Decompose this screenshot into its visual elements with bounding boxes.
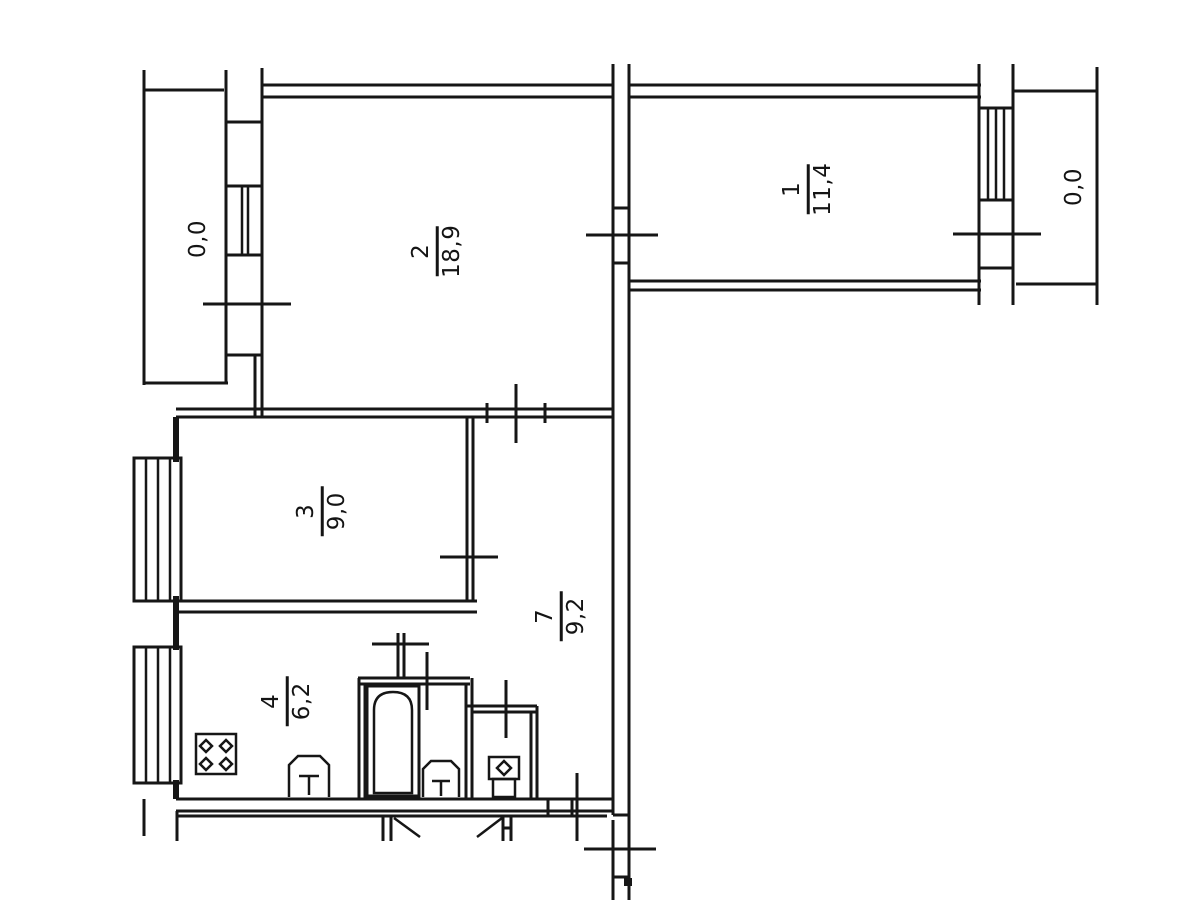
room-4-area: 6,2 [289,682,316,720]
kitchen-sink-icon [289,756,329,797]
bathroom-sink-icon [423,761,459,797]
room-7-label: 7 9,2 [533,588,590,644]
room-4-label: 4 6,2 [259,673,316,729]
bottom-wall [144,799,613,841]
room-7-area: 9,2 [563,597,590,635]
room-1-number: 1 [780,164,810,214]
room-2-area: 18,9 [439,225,466,278]
door-ticks [203,234,1041,849]
stove-icon [196,734,236,774]
left-balcony-label: 0,0 [185,213,211,265]
room2-balcony-window [226,68,262,418]
room-3-label: 3 9,0 [294,483,351,539]
toilet-icon [489,757,519,797]
room-3-number: 3 [294,486,324,536]
room-1-area: 11,4 [810,163,837,216]
top-wall [263,85,981,97]
wc-walls [466,706,537,798]
room-3-area: 9,0 [324,492,351,530]
room-2-label: 2 18,9 [409,223,466,279]
floor-plan-drawing [0,0,1200,900]
room-4-number: 4 [259,676,289,726]
room-7-number: 7 [533,591,563,641]
floor-plan: 1 11,4 2 18,9 3 9,0 4 6,2 7 9,2 0,0 0,0 [0,0,1200,900]
room2-room3-wall [176,403,613,423]
room-2-number: 2 [409,226,439,276]
bathtub-icon [367,686,419,796]
entrance-doors [383,816,511,841]
right-balcony-label: 0,0 [1061,161,1087,213]
central-partition-wall [613,64,632,900]
room-1-label: 1 11,4 [780,161,837,217]
